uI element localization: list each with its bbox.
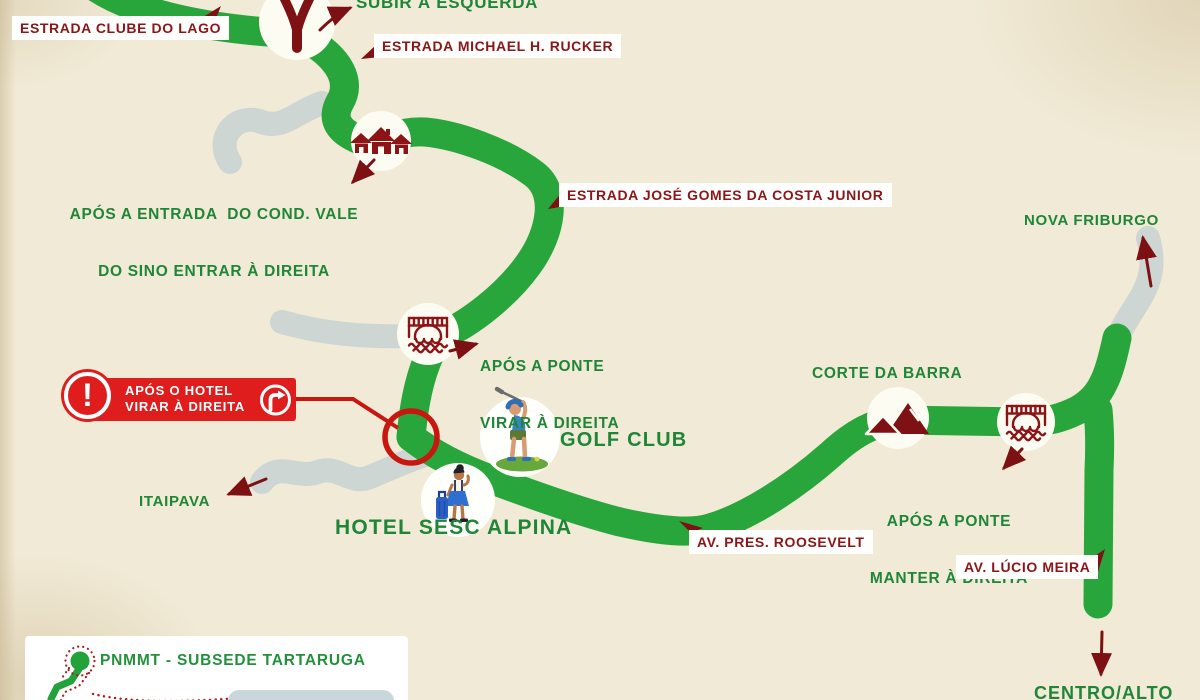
road-label-av-pres-roosevelt: AV. PRES. ROOSEVELT: [689, 530, 873, 554]
turn-right-icon: [260, 384, 291, 415]
road-gray-cond-vale: [225, 103, 322, 162]
direction-ponte-manter: APÓS A PONTE MANTER À DIREITA: [853, 474, 1045, 626]
exclamation-icon: !: [64, 372, 111, 419]
badge-bridge-1: [397, 303, 459, 365]
place-itaipava: ITAIPAVA: [139, 493, 210, 510]
place-nova-friburgo: NOVA FRIBURGO: [1024, 212, 1159, 229]
direction-cond-vale-line1: APÓS A ENTRADA DO COND. VALE: [58, 205, 370, 224]
road-label-estrada-clube-do-lago: ESTRADA CLUBE DO LAGO: [12, 16, 229, 40]
road-label-estrada-michael-rucker: ESTRADA MICHAEL H. RUCKER: [374, 34, 621, 58]
legend-box: PNMMT - SUBSEDE TARTARUGA: [25, 636, 408, 700]
arrow-ponte-manter: [1004, 449, 1022, 468]
road-label-estrada-jose-gomes: ESTRADA JOSÉ GOMES DA COSTA JUNIOR: [559, 183, 892, 207]
road-gray-itaipava: [262, 452, 436, 482]
alert-callout: ! APÓS O HOTEL VIRAR À DIREITA: [78, 378, 296, 421]
direction-cond-vale-line2: DO SINO ENTRAR À DIREITA: [58, 262, 370, 281]
map-pin-icon: [51, 647, 95, 700]
direction-cond-vale: APÓS A ENTRADA DO COND. VALE DO SINO ENT…: [58, 167, 370, 319]
arrow-centro-alto: [1101, 632, 1102, 674]
road-label-av-lucio-meira: AV. LÚCIO MEIRA: [956, 555, 1098, 579]
route-map: SUBIR À ESQUERDA APÓS A ENTRADA DO COND.…: [0, 0, 1200, 700]
badge-bridge-2: [997, 393, 1055, 451]
direction-ponte-manter-line1: APÓS A PONTE: [853, 512, 1045, 531]
place-golf-club: GOLF CLUB: [560, 429, 687, 452]
direction-subir-esquerda: SUBIR À ESQUERDA: [356, 0, 538, 13]
place-hotel-sesc-alpina: HOTEL SESC ALPINA: [335, 516, 572, 540]
direction-ponte-virar-line1: APÓS A PONTE: [480, 357, 619, 376]
legend-road-swatch: [228, 690, 394, 700]
road-gray-bridge-west: [282, 322, 410, 336]
place-centro-alto: CENTRO/ALTO: [1034, 683, 1173, 700]
landmark-badges: [259, 0, 1055, 537]
place-corte-da-barra: CORTE DA BARRA: [812, 365, 962, 383]
legend-title: PNMMT - SUBSEDE TARTARUGA: [100, 652, 366, 670]
